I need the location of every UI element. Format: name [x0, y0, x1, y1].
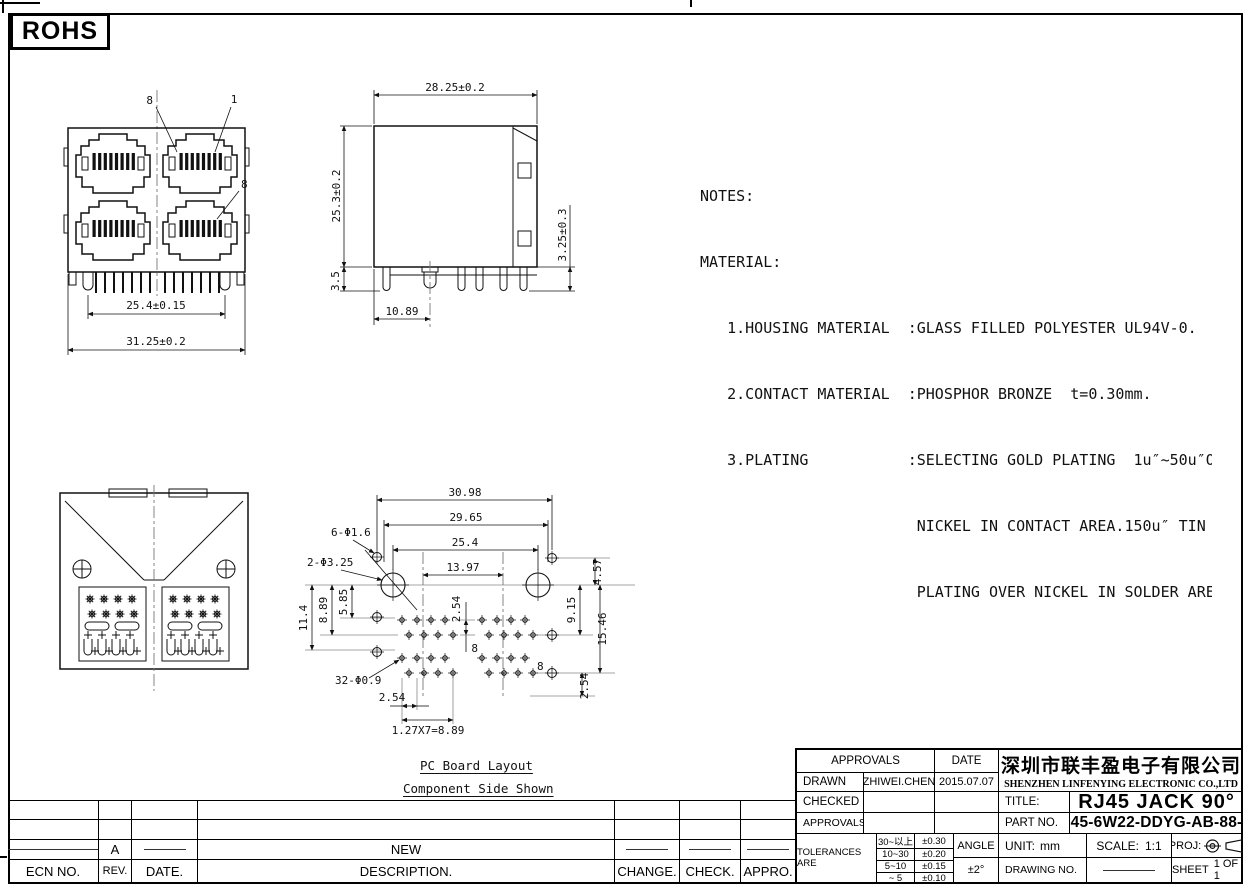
tolerance-row: 5~10 ±0.15: [877, 860, 953, 872]
title-block: APPROVALS DATE DRAWN ZHIWEI.CHEN 2015.07…: [795, 748, 1243, 882]
revision-table: A NEW ECN NO. REV. DATE. DESCRIPTION. CH…: [8, 800, 795, 883]
drawing-no-value: [1087, 858, 1172, 882]
revision-rev: A: [111, 842, 120, 857]
fold-tick: [690, 0, 692, 7]
dim-label: 10.89: [385, 305, 418, 318]
solder-pins: [96, 272, 219, 293]
revision-header-row: ECN NO. REV. DATE. DESCRIPTION. CHANGE. …: [8, 859, 795, 883]
sheet-value: 1 OF 1: [1214, 858, 1243, 882]
header-description: DESCRIPTION.: [198, 860, 615, 883]
notes-line: 1.HOUSING MATERIAL :GLASS FILLED POLYEST…: [700, 317, 1212, 339]
mount-post: [83, 272, 93, 290]
revision-description: NEW: [391, 842, 421, 857]
dim-side-width: 28.25±0.2: [374, 81, 537, 124]
pin-number-label: 8: [241, 178, 248, 191]
dim-label: 3.25±0.3: [556, 209, 569, 262]
part-no-label: PART NO.: [999, 813, 1070, 834]
callout-label: 6-Φ1.6: [331, 526, 371, 539]
tolerances-table: 30~以上 ±0.30 10~30 ±0.20 5~10 ±0.15 ~ 5 ±…: [877, 834, 954, 882]
contact-pins: [86, 595, 222, 619]
pcb-caption-line2: Component Side Shown: [403, 781, 554, 796]
unit-value: mm: [1040, 839, 1060, 853]
pcb-dimensions: 30.98 29.65 25.4 13.97 2.54 11.4 8.89 5.…: [297, 486, 609, 737]
placeholder-dash: [626, 849, 668, 850]
dim-label: 25.4±0.15: [126, 299, 186, 312]
proj-cell: PROJ:: [1172, 834, 1243, 858]
dim-label: 3.5: [330, 271, 342, 291]
shield-tab: [518, 231, 531, 246]
tolerance-row: ~ 5 ±0.10: [877, 872, 953, 884]
dim-label: 2.54: [578, 672, 591, 699]
notes-line: NOTES:: [700, 185, 1212, 207]
drawn-label: DRAWN: [797, 773, 864, 792]
dim-tab-height: 3.25±0.3: [529, 205, 575, 291]
header-appro: APPRO.: [741, 860, 795, 883]
notes-line: MATERIAL:: [700, 251, 1212, 273]
tolerance-value: ±0.20: [915, 849, 953, 860]
third-angle-projection-icon: [1204, 838, 1243, 854]
company-name-cn: 深圳市联丰盈电子有限公司: [1001, 751, 1241, 778]
drawing-sheet: ROHS: [0, 0, 1248, 890]
pin-number-label: 8: [146, 94, 153, 107]
placeholder-dash: [8, 849, 98, 850]
pcb-layout-drawing: 30.98 29.65 25.4 13.97 2.54 11.4 8.89 5.…: [295, 462, 665, 762]
checked-date: [935, 792, 999, 813]
notes-block: NOTES: MATERIAL: 1.HOUSING MATERIAL :GLA…: [700, 141, 1212, 611]
dim-side-height: 25.3±0.2: [330, 126, 372, 267]
dim-label: 8.89: [317, 597, 330, 624]
tolerance-row: 10~30 ±0.20: [877, 848, 953, 860]
dim-peg-offset: 10.89: [374, 269, 430, 325]
dim-label: 29.65: [449, 511, 482, 524]
approvals-label: APPROVALS: [797, 813, 864, 834]
pcb-caption-line1: PC Board Layout: [420, 758, 533, 773]
tolerances-label: TOLERANCES ARE: [797, 834, 877, 882]
corner-mark: [0, 2, 40, 4]
jack-body-outline: [68, 128, 245, 272]
tolerance-range: 30~以上: [877, 834, 915, 848]
scale-label: SCALE:: [1096, 839, 1139, 853]
pin-number-label: 1: [231, 93, 238, 106]
tolerance-range: 10~30: [877, 849, 915, 860]
front-view-drawing: 25.4±0.15 31.25±0.2 8 1 8: [50, 78, 320, 378]
side-view-drawing: 28.25±0.2 25.3±0.2 3.5 10.89 3.25±0.3: [330, 75, 640, 340]
dim-label: 31.25±0.2: [126, 335, 186, 348]
placeholder-dash: [747, 849, 789, 850]
rohs-label: ROHS: [22, 17, 98, 46]
tolerance-value: ±0.30: [915, 834, 953, 848]
notes-line: 2.CONTACT MATERIAL :PHOSPHOR BRONZE t=0.…: [700, 383, 1212, 405]
dim-label: 30.98: [448, 486, 481, 499]
placeholder-dash: [144, 849, 186, 850]
rohs-badge: ROHS: [10, 13, 110, 50]
dim-label: 9.15: [565, 597, 578, 624]
header-check: CHECK.: [680, 860, 741, 883]
scale-cell: SCALE: 1:1: [1087, 834, 1172, 858]
tolerance-range: ~ 5: [877, 873, 915, 884]
dim-label: 11.4: [297, 604, 310, 631]
notes-line: 3.PLATING :SELECTING GOLD PLATING 1u″~50…: [700, 449, 1212, 471]
unit-cell: UNIT: mm: [999, 834, 1087, 858]
rj45-ports: [76, 134, 237, 260]
dim-label: 5.85: [337, 589, 350, 616]
company-name-en: SHENZHEN LINFENYING ELECTRONIC CO.,LTD: [1004, 779, 1238, 790]
revision-row-a: A NEW: [8, 839, 795, 859]
drawing-no-label: DRAWING NO.: [999, 858, 1087, 882]
notes-line: PLATING OVER NICKEL IN SOLDER AREA: [700, 581, 1212, 603]
dim-label: 2.54: [450, 595, 463, 622]
sheet-label: SHEET: [1172, 864, 1209, 876]
dim-label: 4.57: [591, 559, 604, 586]
fold-tick: [0, 856, 7, 858]
angle-label: ANGLE: [954, 834, 999, 858]
angle-value: ±2°: [954, 858, 999, 882]
side-pins: [383, 267, 527, 291]
callout-label: 32-Φ0.9: [335, 674, 381, 687]
title-value: RJ45 JACK 90°: [1070, 792, 1243, 813]
header-date: DATE.: [132, 860, 198, 883]
revision-row-empty: [8, 819, 795, 838]
approvals-header: APPROVALS: [797, 750, 935, 773]
header-ecn-no: ECN NO.: [8, 860, 99, 883]
header-change: CHANGE.: [615, 860, 680, 883]
date-header: DATE: [935, 750, 999, 773]
corner-mark: [2, 0, 4, 13]
dim-label: 1.27X7=8.89: [392, 724, 465, 737]
dim-label: 25.3±0.2: [330, 170, 343, 223]
dim-label: 15.46: [596, 612, 609, 645]
company-cell: 深圳市联丰盈电子有限公司 SHENZHEN LINFENYING ELECTRO…: [999, 750, 1243, 792]
part-no-value: RJ45-6W22-DDYG-AB-88-B1: [1070, 813, 1243, 834]
pin-number-label: 8: [471, 642, 478, 655]
title-label: TITLE:: [999, 792, 1070, 813]
unit-label: UNIT:: [1005, 839, 1035, 853]
dim-label: 25.4: [452, 536, 479, 549]
proj-label: PROJ:: [1172, 840, 1201, 852]
callout-label: 2-Φ3.25: [307, 556, 353, 569]
mount-post: [220, 272, 230, 290]
tolerance-value: ±0.15: [915, 861, 953, 872]
checked-label: CHECKED: [797, 792, 864, 813]
header-rev: REV.: [99, 860, 132, 883]
sheet-cell: SHEET 1 OF 1: [1172, 858, 1243, 882]
tolerance-row: 30~以上 ±0.30: [877, 834, 953, 848]
tolerance-value: ±0.10: [915, 873, 953, 884]
approvals-date: [935, 813, 999, 834]
notes-line: NICKEL IN CONTACT AREA.150u″ TIN: [700, 515, 1212, 537]
tolerance-range: 5~10: [877, 861, 915, 872]
drawn-name: ZHIWEI.CHEN: [864, 773, 935, 792]
dim-label: 13.97: [446, 561, 479, 574]
pin-number-label: 8: [537, 660, 544, 673]
pin-holes: [397, 615, 538, 678]
shield-tab: [518, 163, 531, 178]
drawn-date: 2015.07.07: [935, 773, 999, 792]
dim-label: 28.25±0.2: [425, 81, 485, 94]
revision-row-empty: [8, 801, 795, 819]
bottom-view-drawing: [52, 483, 277, 698]
approvals-name: [864, 813, 935, 834]
dim-label: 2.54: [379, 691, 406, 704]
placeholder-dash: [1103, 870, 1155, 871]
checked-name: [864, 792, 935, 813]
dim-pin-length: 3.5: [330, 267, 380, 291]
dim-port-span: 25.4±0.15: [88, 295, 225, 319]
scale-value: 1:1: [1145, 839, 1162, 853]
placeholder-dash: [689, 849, 731, 850]
